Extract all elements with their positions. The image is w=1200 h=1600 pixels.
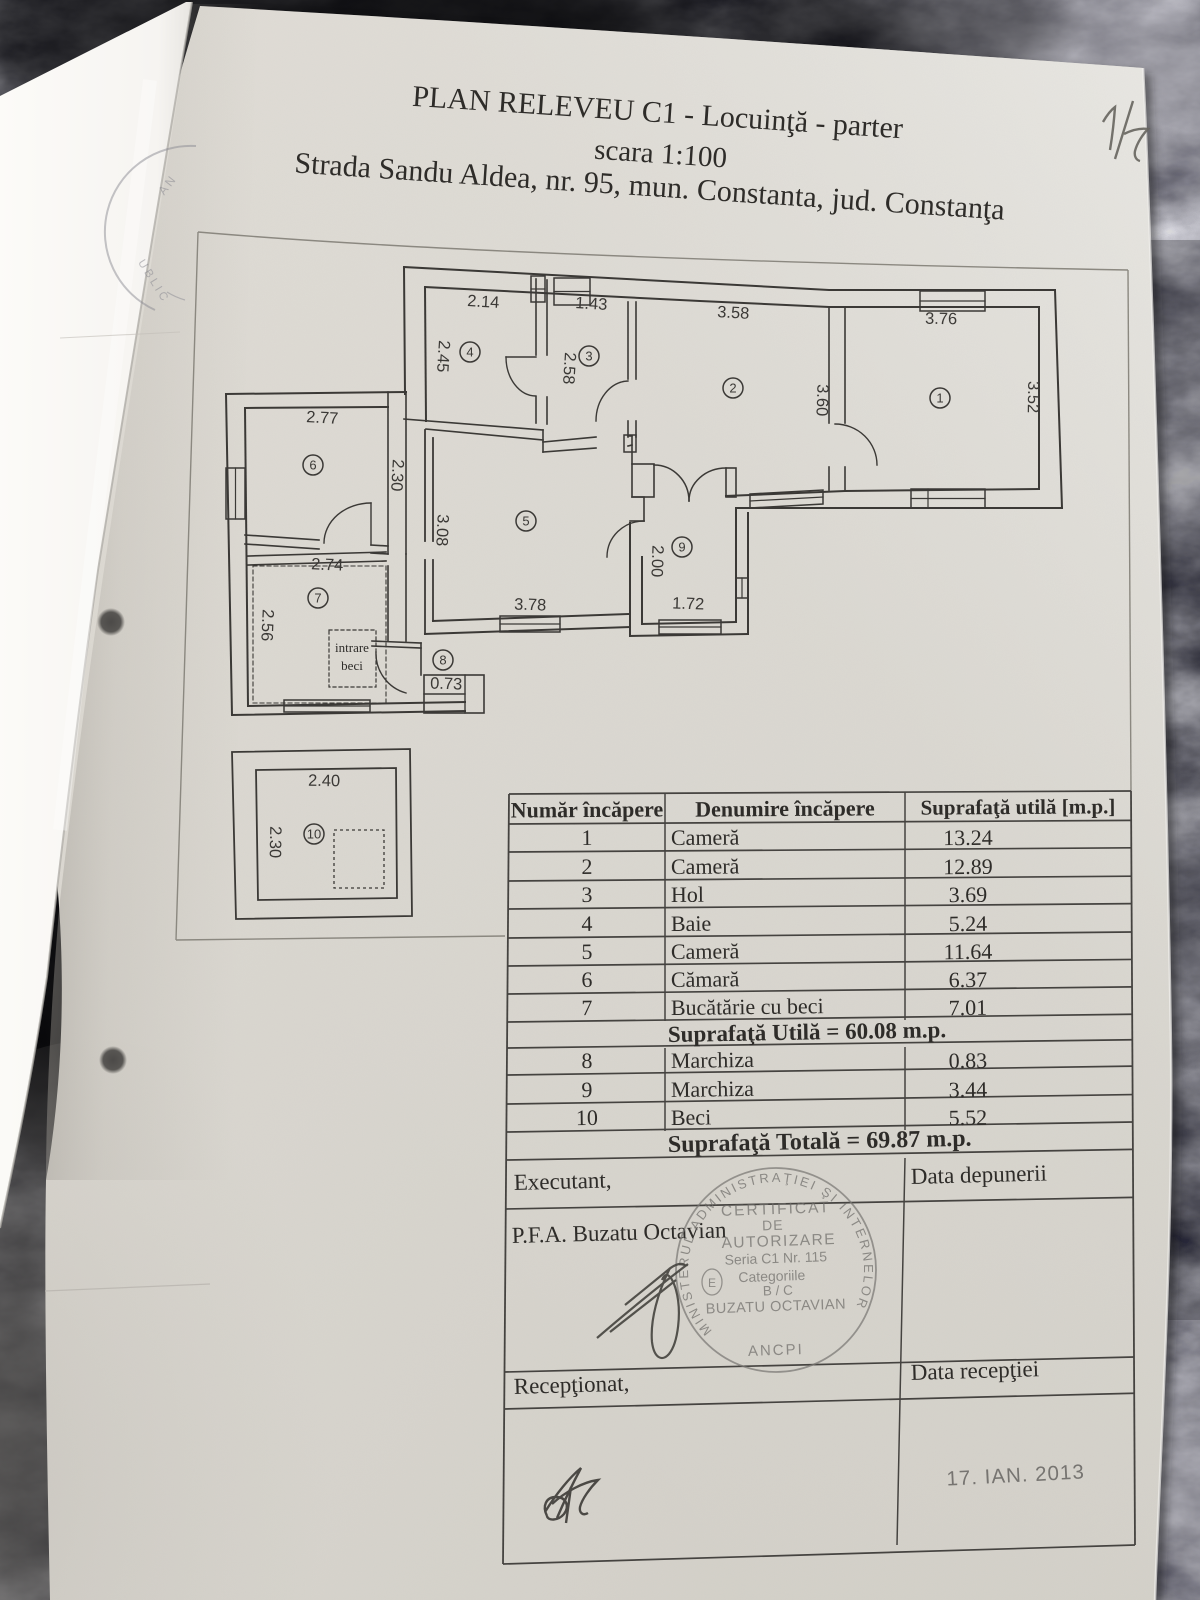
- svg-text:11.64: 11.64: [943, 939, 992, 964]
- svg-text:2.74: 2.74: [311, 555, 344, 574]
- svg-text:8: 8: [439, 653, 446, 668]
- svg-text:2.30: 2.30: [387, 459, 407, 492]
- svg-text:3.78: 3.78: [514, 595, 547, 614]
- svg-text:2.00: 2.00: [647, 545, 666, 578]
- svg-text:5: 5: [581, 939, 592, 964]
- svg-text:Cămară: Cămară: [671, 966, 740, 992]
- svg-text:3.08: 3.08: [432, 514, 451, 547]
- svg-text:2: 2: [729, 381, 736, 396]
- svg-text:B / C: B / C: [763, 1282, 794, 1298]
- svg-text:2.40: 2.40: [308, 772, 340, 791]
- svg-text:Data recepţiei: Data recepţiei: [910, 1356, 1039, 1385]
- svg-text:Cameră: Cameră: [671, 825, 740, 850]
- svg-text:5: 5: [522, 514, 529, 529]
- svg-text:2: 2: [581, 854, 592, 879]
- svg-text:2.45: 2.45: [433, 340, 453, 373]
- svg-text:3.44: 3.44: [948, 1077, 987, 1103]
- svg-text:Cameră: Cameră: [671, 938, 740, 964]
- svg-text:7.01: 7.01: [949, 995, 988, 1020]
- svg-text:2.58: 2.58: [559, 352, 579, 385]
- svg-text:Beci: Beci: [671, 1104, 712, 1130]
- svg-text:2.30: 2.30: [266, 826, 285, 858]
- svg-text:1.72: 1.72: [672, 594, 705, 613]
- svg-text:Număr încăpere: Număr încăpere: [511, 796, 664, 822]
- svg-text:Denumire încăpere: Denumire încăpere: [695, 795, 875, 821]
- svg-text:1: 1: [581, 825, 592, 850]
- svg-text:3.60: 3.60: [812, 384, 831, 417]
- svg-text:9: 9: [581, 1077, 592, 1102]
- svg-text:3.76: 3.76: [925, 310, 957, 329]
- svg-text:Marchiza: Marchiza: [671, 1076, 755, 1102]
- svg-text:Cameră: Cameră: [671, 853, 740, 879]
- svg-text:beci: beci: [341, 658, 363, 673]
- svg-text:4: 4: [466, 345, 473, 360]
- svg-text:Suprafaţă Utilă = 60.08 m.p.: Suprafaţă Utilă = 60.08 m.p.: [668, 1017, 947, 1047]
- svg-text:6: 6: [581, 967, 592, 992]
- svg-text:10: 10: [576, 1105, 598, 1130]
- svg-text:3: 3: [581, 882, 592, 907]
- svg-text:Recepţionat,: Recepţionat,: [513, 1371, 629, 1399]
- svg-text:Baie: Baie: [671, 911, 712, 936]
- svg-text:0.73: 0.73: [430, 674, 463, 693]
- svg-text:3.52: 3.52: [1024, 381, 1043, 413]
- svg-text:10: 10: [307, 827, 321, 842]
- svg-text:3: 3: [585, 349, 592, 364]
- svg-text:7: 7: [581, 995, 592, 1020]
- svg-text:2.77: 2.77: [306, 408, 339, 428]
- svg-text:6.37: 6.37: [949, 967, 988, 992]
- svg-text:intrare: intrare: [335, 640, 369, 655]
- svg-text:Executant,: Executant,: [513, 1167, 611, 1195]
- svg-text:1.43: 1.43: [575, 294, 608, 314]
- svg-text:Data depunerii: Data depunerii: [910, 1160, 1047, 1189]
- svg-text:ANCPI: ANCPI: [748, 1341, 804, 1360]
- svg-text:Suprafaţă utilă [m.p.]: Suprafaţă utilă [m.p.]: [920, 794, 1115, 819]
- svg-text:Marchiza: Marchiza: [671, 1047, 755, 1073]
- svg-text:7: 7: [314, 591, 321, 606]
- svg-text:13.24: 13.24: [943, 825, 993, 850]
- svg-text:9: 9: [678, 540, 685, 555]
- svg-text:5.24: 5.24: [949, 911, 988, 936]
- svg-text:8: 8: [581, 1048, 592, 1073]
- svg-text:4: 4: [581, 911, 592, 936]
- svg-text:12.89: 12.89: [943, 854, 993, 879]
- svg-text:Hol: Hol: [671, 882, 704, 907]
- svg-text:6: 6: [309, 458, 316, 473]
- svg-text:DE: DE: [762, 1217, 784, 1234]
- svg-text:0.83: 0.83: [948, 1048, 987, 1074]
- svg-text:2.14: 2.14: [467, 292, 500, 312]
- svg-text:3.69: 3.69: [949, 882, 988, 907]
- svg-text:1: 1: [936, 391, 943, 406]
- svg-text:E: E: [708, 1276, 716, 1290]
- svg-text:Bucătărie cu beci: Bucătărie cu beci: [671, 993, 824, 1020]
- svg-text:3.58: 3.58: [717, 303, 750, 323]
- svg-text:2.56: 2.56: [257, 609, 276, 642]
